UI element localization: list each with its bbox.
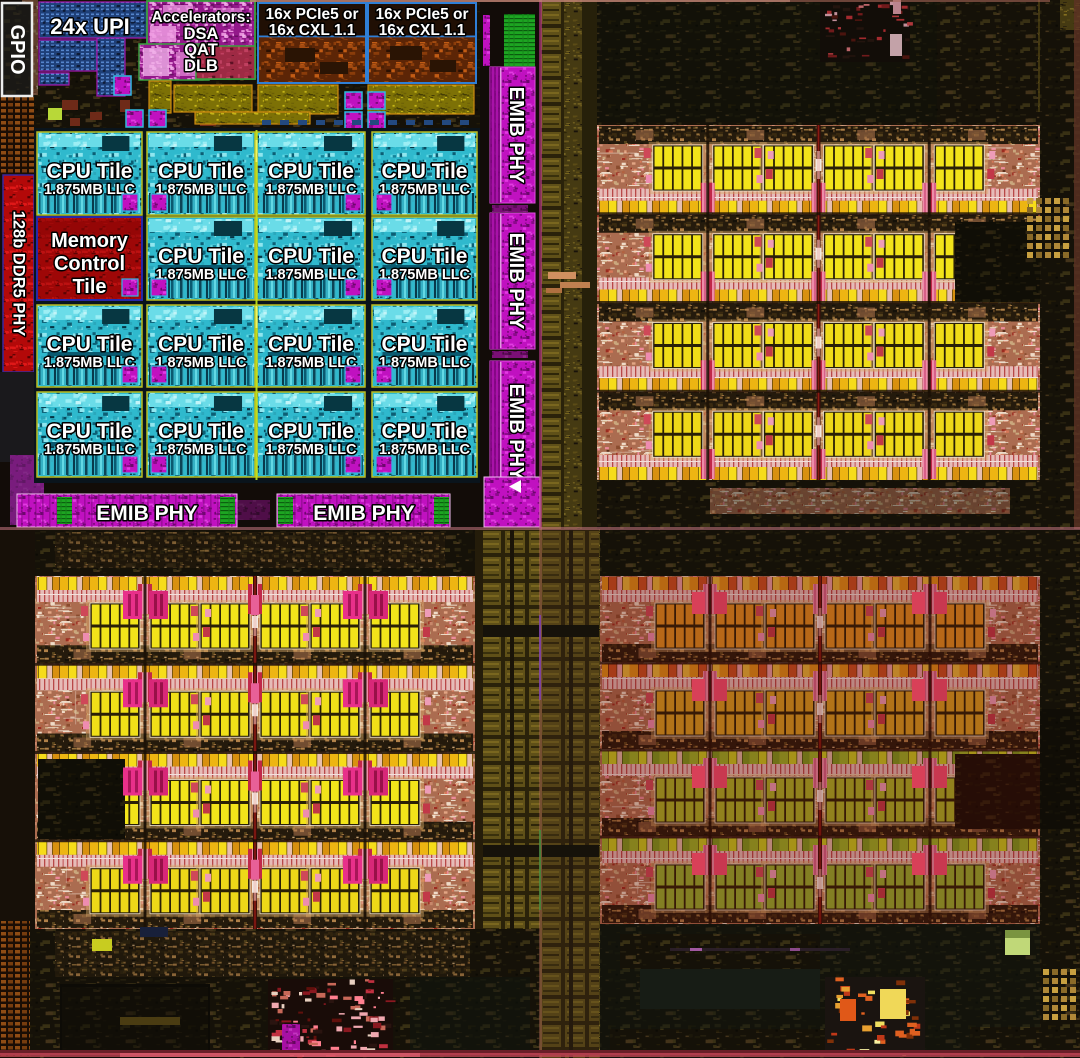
svg-text:1.875MB LLC: 1.875MB LLC xyxy=(265,355,357,371)
svg-text:1.875MB LLC: 1.875MB LLC xyxy=(379,442,471,458)
svg-text:1.875MB LLC: 1.875MB LLC xyxy=(379,182,471,198)
svg-text:1.875MB LLC: 1.875MB LLC xyxy=(155,442,247,458)
svg-text:EMIB PHY: EMIB PHY xyxy=(505,87,527,184)
svg-text:CPU Tile: CPU Tile xyxy=(47,333,133,356)
svg-text:1.875MB LLC: 1.875MB LLC xyxy=(265,267,357,283)
svg-text:1.875MB LLC: 1.875MB LLC xyxy=(379,267,471,283)
svg-text:CPU Tile: CPU Tile xyxy=(268,160,354,183)
svg-text:16x PCIe5 or: 16x PCIe5 or xyxy=(375,6,468,23)
svg-text:EMIB PHY: EMIB PHY xyxy=(313,502,415,525)
svg-text:CPU Tile: CPU Tile xyxy=(382,333,468,356)
svg-text:16x CXL 1.1: 16x CXL 1.1 xyxy=(269,22,356,39)
svg-text:EMIB PHY: EMIB PHY xyxy=(96,502,198,525)
svg-text:Accelerators:: Accelerators: xyxy=(151,9,250,26)
svg-text:DLB: DLB xyxy=(184,57,218,75)
svg-text:Control: Control xyxy=(54,253,125,275)
svg-text:Memory: Memory xyxy=(51,230,129,252)
svg-text:CPU Tile: CPU Tile xyxy=(268,420,354,443)
svg-text:CPU Tile: CPU Tile xyxy=(158,160,244,183)
svg-text:EMIB PHY: EMIB PHY xyxy=(505,233,527,330)
svg-text:1.875MB LLC: 1.875MB LLC xyxy=(265,182,357,198)
svg-text:CPU Tile: CPU Tile xyxy=(268,333,354,356)
svg-text:16x CXL 1.1: 16x CXL 1.1 xyxy=(379,22,466,39)
svg-text:CPU Tile: CPU Tile xyxy=(158,245,244,268)
svg-text:CPU Tile: CPU Tile xyxy=(382,245,468,268)
svg-text:GPIO: GPIO xyxy=(6,24,28,74)
svg-text:1.875MB LLC: 1.875MB LLC xyxy=(379,355,471,371)
svg-text:CPU Tile: CPU Tile xyxy=(268,245,354,268)
svg-text:16x PCIe5 or: 16x PCIe5 or xyxy=(265,6,358,23)
svg-text:CPU Tile: CPU Tile xyxy=(382,160,468,183)
svg-text:CPU Tile: CPU Tile xyxy=(158,333,244,356)
svg-text:128b DDR5 PHY: 128b DDR5 PHY xyxy=(10,211,28,337)
svg-text:1.875MB LLC: 1.875MB LLC xyxy=(155,355,247,371)
svg-text:CPU Tile: CPU Tile xyxy=(158,420,244,443)
svg-text:CPU Tile: CPU Tile xyxy=(47,160,133,183)
svg-text:24x UPI: 24x UPI xyxy=(50,14,130,39)
svg-text:Tile: Tile xyxy=(72,276,106,298)
svg-text:EMIB PHY: EMIB PHY xyxy=(505,384,527,481)
svg-text:1.875MB LLC: 1.875MB LLC xyxy=(155,182,247,198)
svg-text:CPU Tile: CPU Tile xyxy=(382,420,468,443)
svg-text:1.875MB LLC: 1.875MB LLC xyxy=(155,267,247,283)
svg-text:CPU Tile: CPU Tile xyxy=(47,420,133,443)
svg-text:1.875MB LLC: 1.875MB LLC xyxy=(265,442,357,458)
